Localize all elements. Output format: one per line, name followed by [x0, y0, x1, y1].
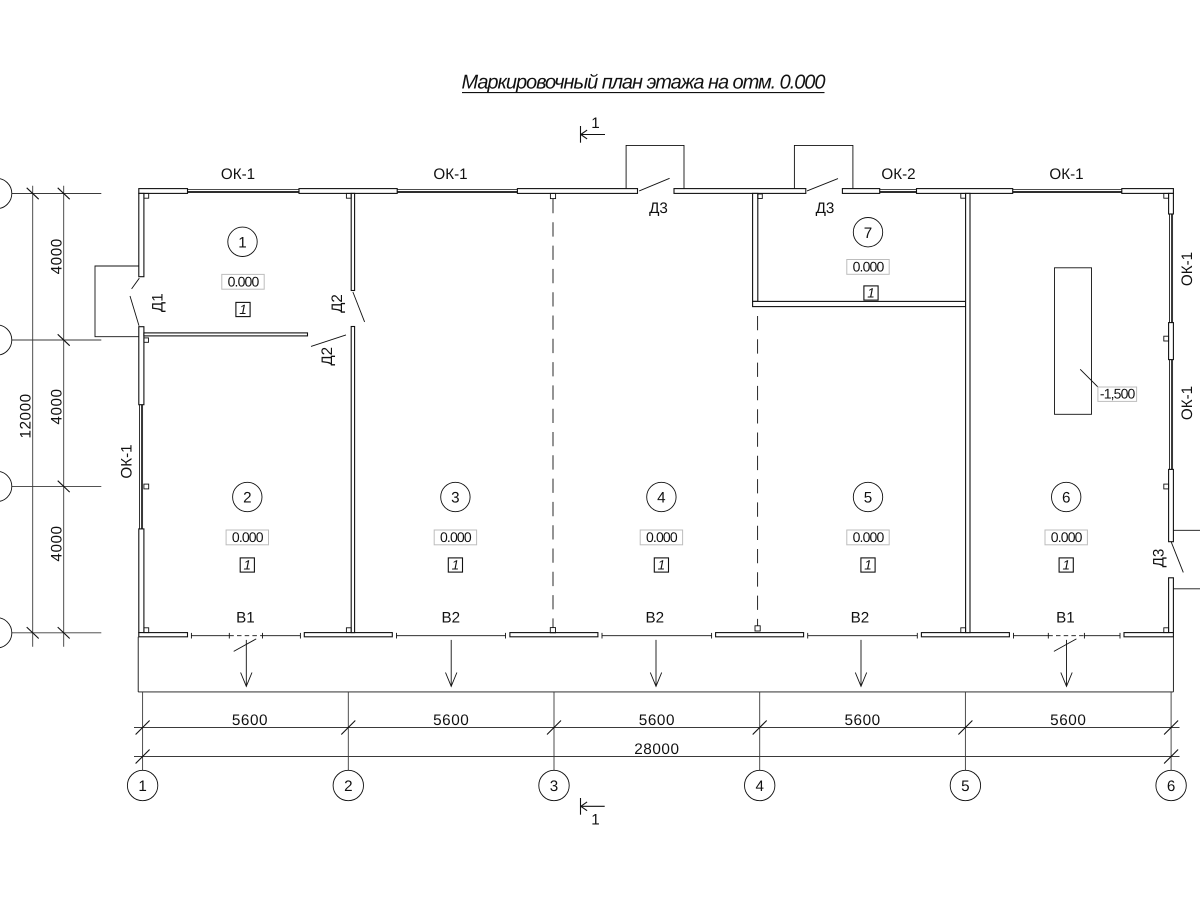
svg-text:5600: 5600 [844, 712, 880, 729]
svg-text:1: 1 [864, 557, 872, 572]
svg-text:Д3: Д3 [649, 200, 668, 217]
svg-text:7: 7 [864, 225, 872, 242]
svg-text:ОК-2: ОК-2 [881, 166, 915, 183]
svg-text:Д1: Д1 [150, 293, 167, 312]
svg-text:2: 2 [344, 778, 352, 795]
svg-text:3: 3 [550, 778, 558, 795]
svg-text:ОК-1: ОК-1 [221, 166, 255, 183]
svg-text:5600: 5600 [232, 712, 268, 729]
svg-text:0.000: 0.000 [232, 529, 264, 545]
svg-text:ОК-1: ОК-1 [1179, 252, 1196, 286]
svg-text:Д3: Д3 [816, 200, 835, 217]
svg-text:0.000: 0.000 [853, 259, 885, 275]
svg-text:В2: В2 [851, 609, 870, 626]
svg-text:В2: В2 [442, 609, 461, 626]
svg-text:1: 1 [1062, 557, 1070, 572]
svg-text:Д3: Д3 [1151, 549, 1168, 568]
svg-text:6: 6 [1167, 778, 1175, 795]
svg-text:1: 1 [867, 285, 875, 300]
svg-text:5600: 5600 [639, 712, 675, 729]
svg-text:2: 2 [243, 490, 251, 507]
svg-text:0.000: 0.000 [853, 529, 885, 545]
svg-text:28000: 28000 [634, 741, 679, 758]
svg-text:4: 4 [755, 778, 763, 795]
svg-text:В1: В1 [1056, 609, 1075, 626]
svg-text:5600: 5600 [1050, 712, 1086, 729]
svg-text:ОК-1: ОК-1 [433, 166, 467, 183]
svg-text:0.000: 0.000 [1051, 529, 1083, 545]
svg-text:В1: В1 [236, 609, 255, 626]
svg-text:Маркировочный план этажа на от: Маркировочный план этажа на отм. 0.000 [462, 71, 826, 93]
svg-text:ОК-1: ОК-1 [1049, 166, 1083, 183]
svg-text:6: 6 [1062, 490, 1070, 507]
svg-text:5600: 5600 [433, 712, 469, 729]
svg-text:0.000: 0.000 [440, 529, 472, 545]
svg-text:4000: 4000 [48, 525, 65, 561]
svg-text:5: 5 [961, 778, 969, 795]
svg-text:1: 1 [591, 812, 599, 829]
svg-text:1: 1 [452, 557, 460, 572]
svg-text:4000: 4000 [48, 388, 65, 424]
svg-text:Д2: Д2 [319, 347, 336, 366]
svg-text:Д2: Д2 [329, 294, 346, 313]
svg-text:1: 1 [138, 778, 146, 795]
svg-text:1: 1 [244, 557, 252, 572]
svg-text:1: 1 [238, 235, 246, 252]
svg-text:3: 3 [451, 490, 459, 507]
svg-text:1: 1 [239, 302, 247, 317]
svg-text:0.000: 0.000 [228, 274, 260, 290]
svg-text:5: 5 [864, 490, 872, 507]
svg-text:ОК-1: ОК-1 [1179, 386, 1196, 420]
svg-text:4000: 4000 [48, 238, 65, 274]
svg-text:1: 1 [591, 115, 599, 132]
svg-text:-1,500: -1,500 [1100, 386, 1136, 402]
svg-text:0.000: 0.000 [646, 529, 678, 545]
svg-text:ОК-1: ОК-1 [118, 444, 135, 478]
svg-text:12000: 12000 [18, 393, 35, 438]
svg-text:1: 1 [658, 557, 666, 572]
svg-text:В2: В2 [646, 609, 665, 626]
svg-text:4: 4 [657, 490, 665, 507]
